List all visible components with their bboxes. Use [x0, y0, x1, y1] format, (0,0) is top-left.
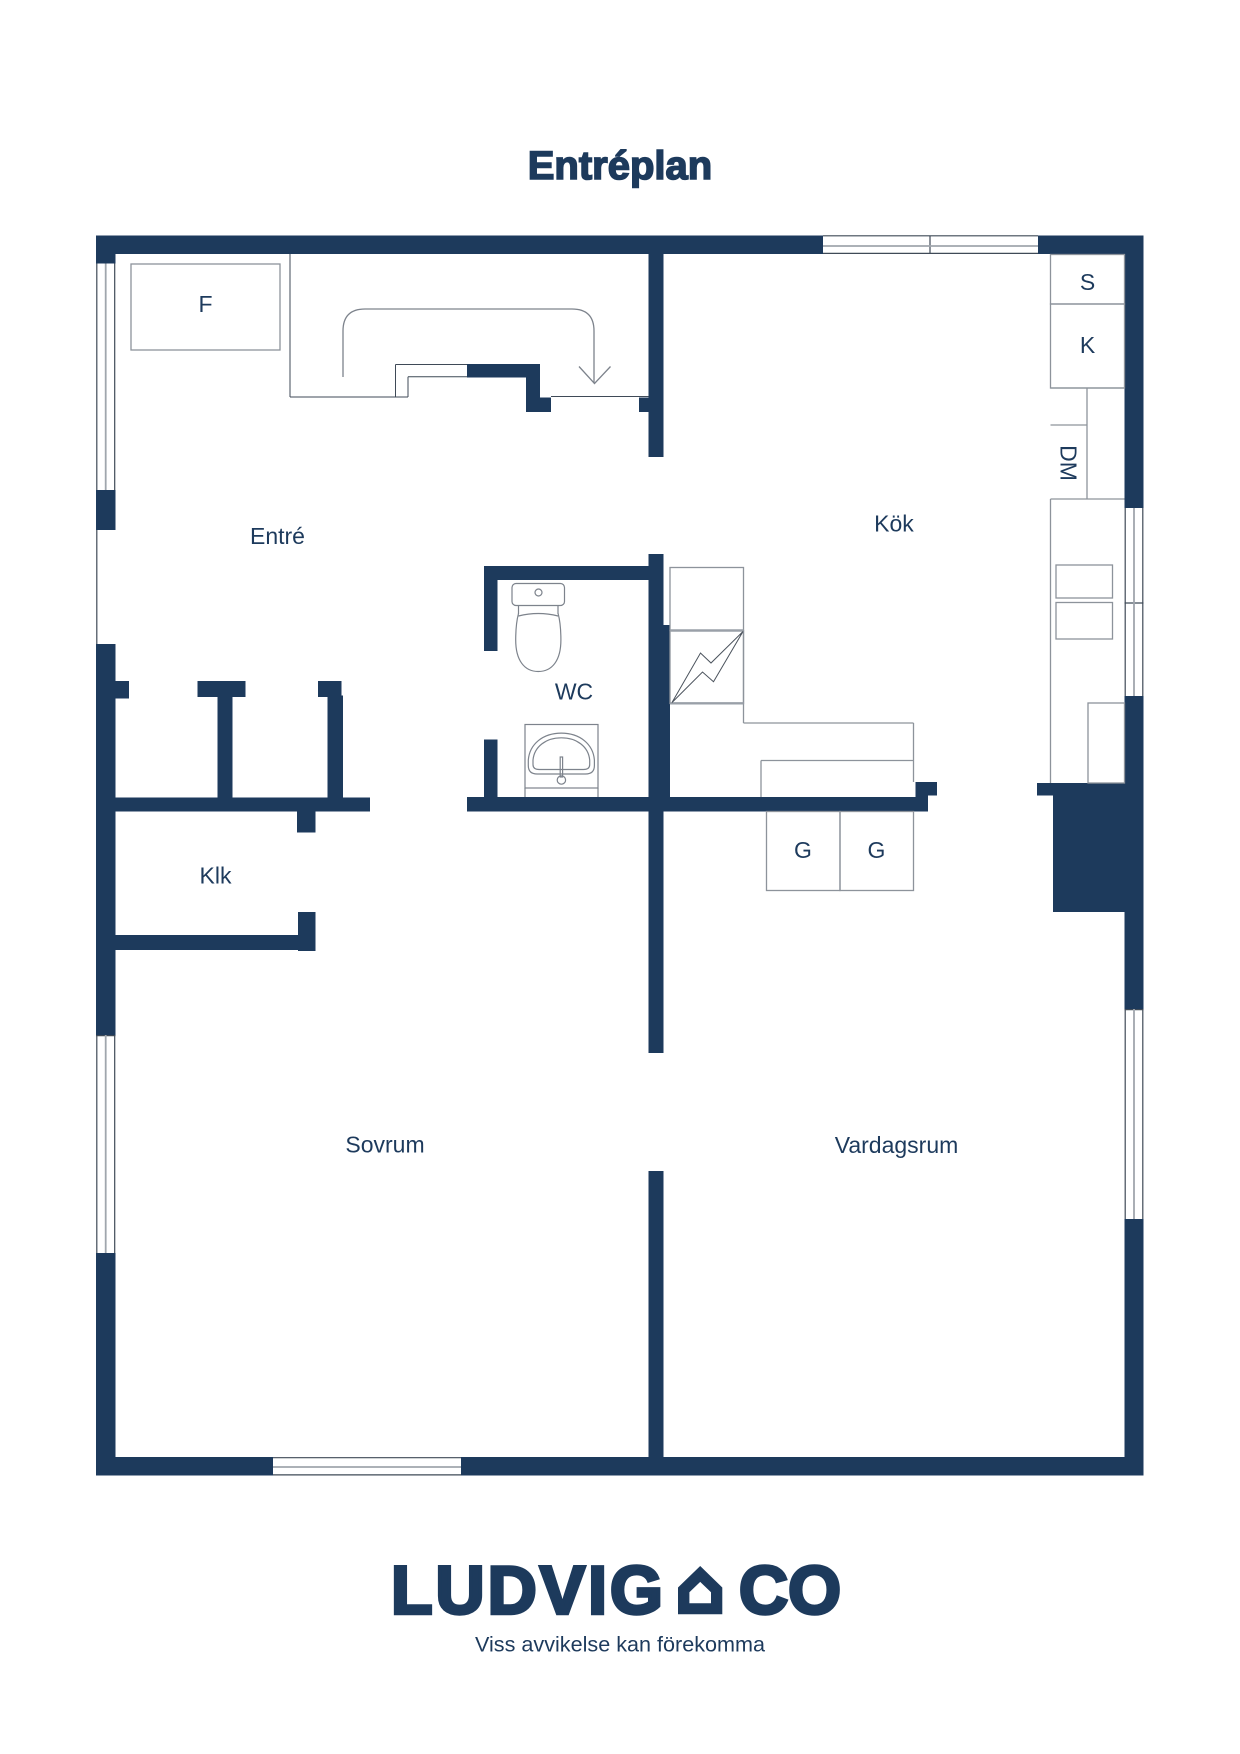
svg-text:Vardagsrum: Vardagsrum	[835, 1132, 959, 1158]
svg-text:Entré: Entré	[250, 523, 305, 549]
svg-text:WC: WC	[555, 679, 593, 705]
svg-text:S: S	[1080, 269, 1095, 295]
svg-text:Entréplan: Entréplan	[528, 144, 712, 188]
svg-text:G: G	[794, 837, 812, 863]
svg-text:CO: CO	[739, 1553, 841, 1629]
svg-text:G: G	[868, 837, 886, 863]
svg-text:Klk: Klk	[200, 863, 232, 889]
svg-text:Sovrum: Sovrum	[345, 1132, 424, 1158]
svg-text:LUDVIG: LUDVIG	[391, 1553, 666, 1629]
svg-text:Viss avvikelse kan förekomma: Viss avvikelse kan förekomma	[475, 1632, 766, 1657]
svg-text:DM: DM	[1056, 445, 1082, 481]
svg-text:F: F	[198, 291, 212, 317]
svg-text:Kök: Kök	[874, 511, 914, 537]
svg-text:K: K	[1080, 332, 1096, 358]
